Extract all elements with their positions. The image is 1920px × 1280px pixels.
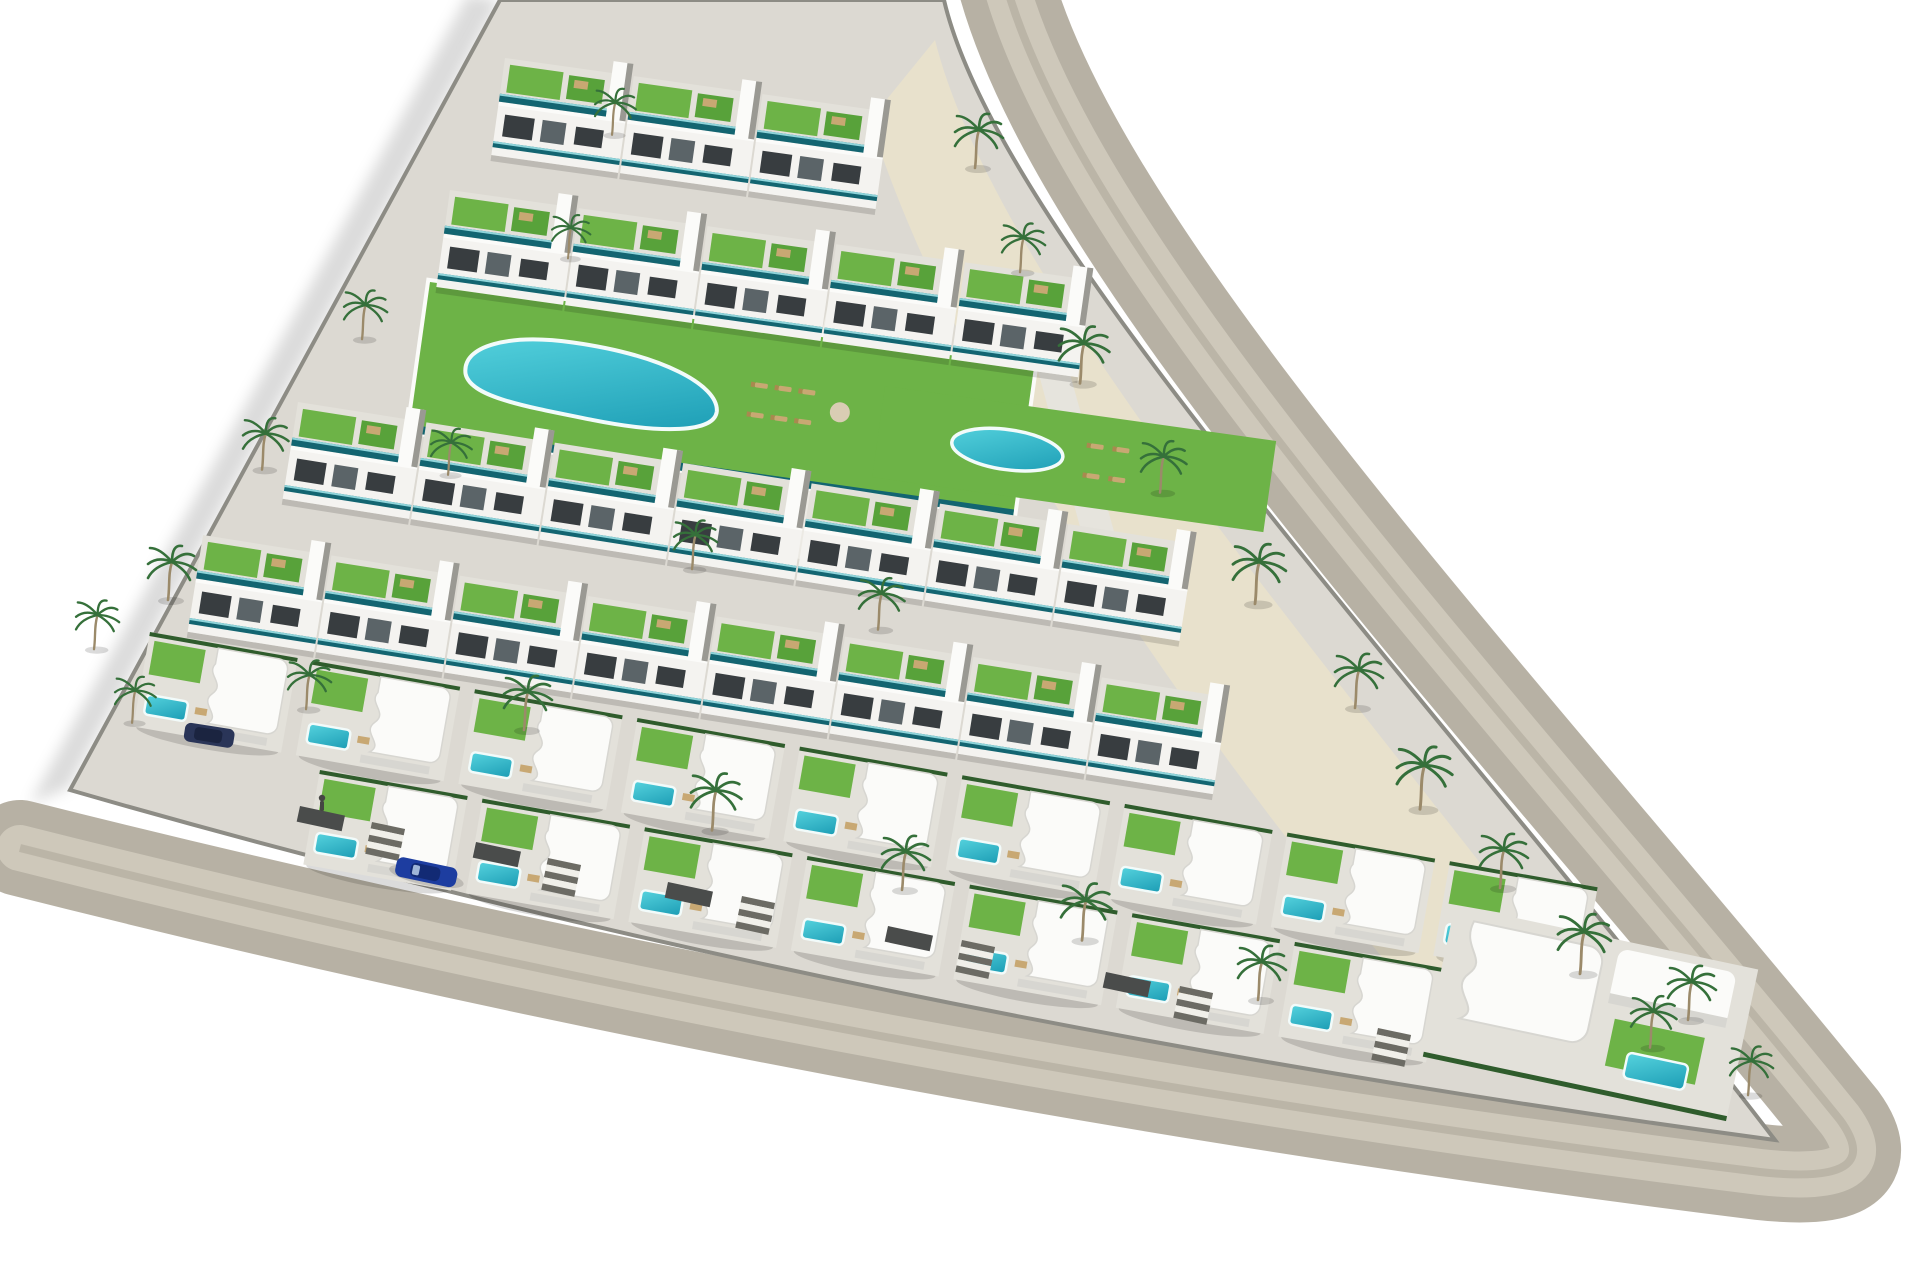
aerial-development-render	[0, 0, 1920, 1280]
entrance-stairs	[1371, 1028, 1411, 1067]
pedestrian-head	[319, 795, 325, 801]
pedestrian-body	[320, 801, 324, 811]
entrance-stairs	[541, 858, 581, 897]
entrance-stairs	[735, 896, 775, 935]
entrance-stairs	[955, 940, 995, 979]
entrance-stairs	[365, 822, 405, 861]
entrance-stairs	[1173, 986, 1213, 1025]
